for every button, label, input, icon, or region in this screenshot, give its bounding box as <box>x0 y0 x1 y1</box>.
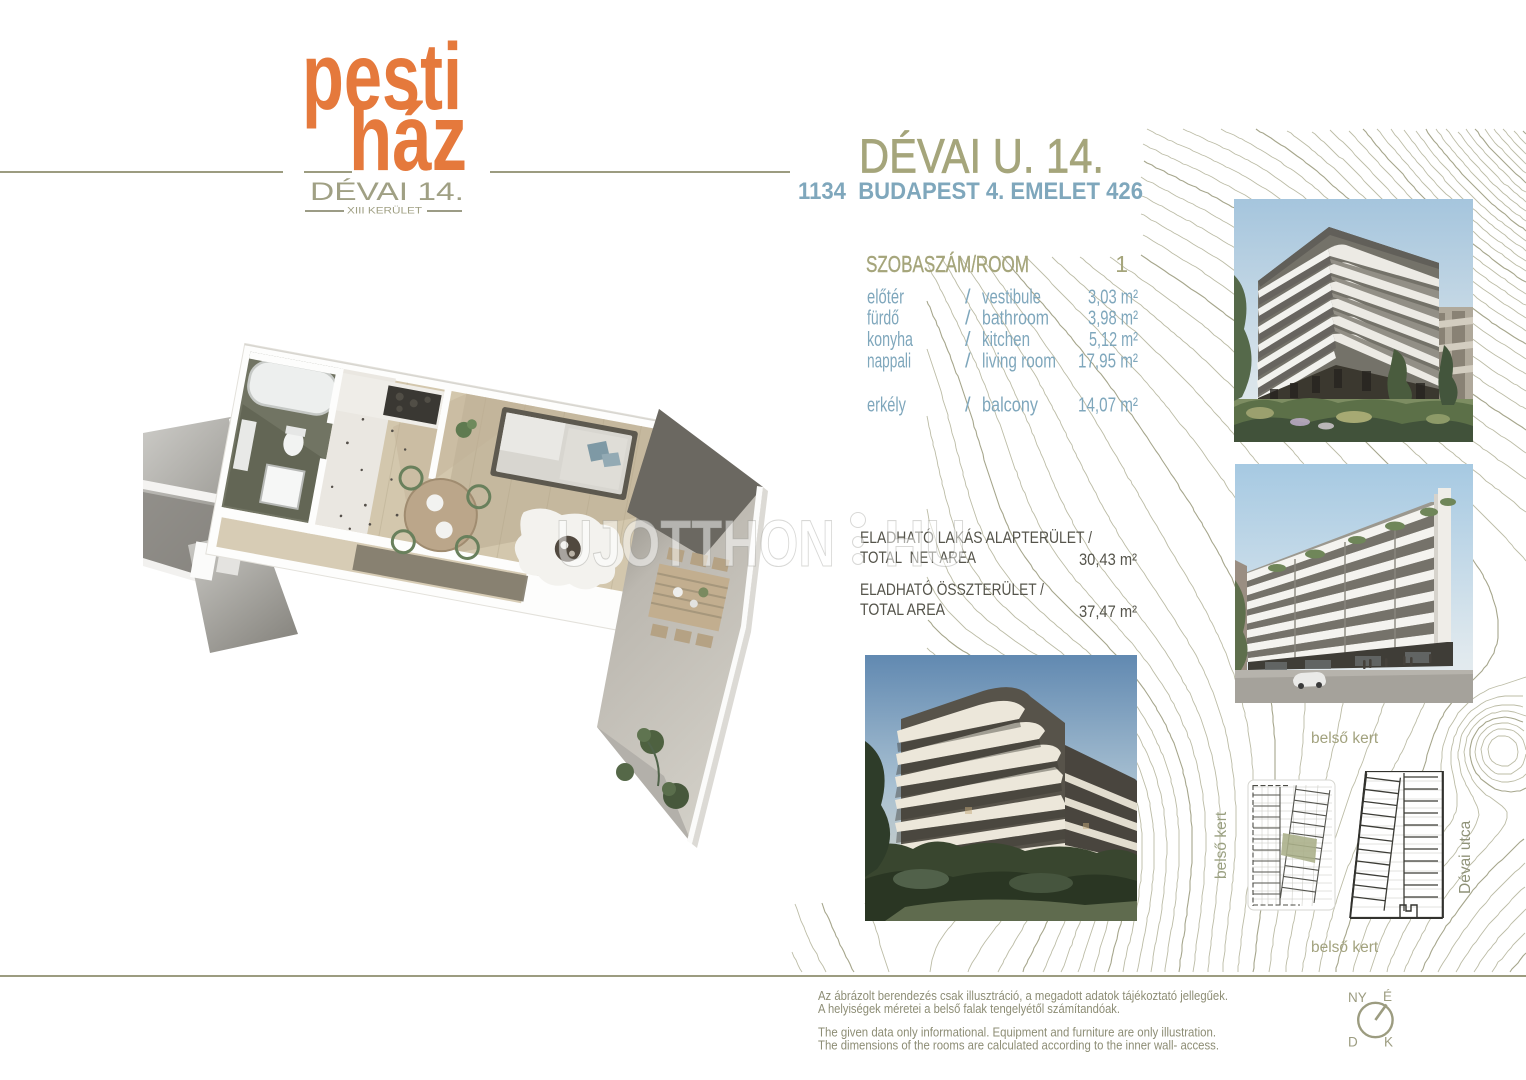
svg-text:É: É <box>1383 989 1392 1004</box>
svg-text:/: / <box>965 308 971 330</box>
svg-text:kitchen: kitchen <box>982 329 1030 351</box>
svg-text:living room: living room <box>982 351 1056 373</box>
svg-text:/: / <box>965 287 971 309</box>
svg-text:bathroom: bathroom <box>982 308 1049 330</box>
svg-text:NY: NY <box>1348 990 1367 1005</box>
svg-text:belső kert: belső kert <box>1311 730 1379 747</box>
svg-text:The dimensions of the rooms ar: The dimensions of the rooms are calculat… <box>818 1038 1219 1053</box>
svg-text:30,43 m²: 30,43 m² <box>1079 550 1137 569</box>
svg-text:HU: HU <box>884 506 966 580</box>
svg-text:1: 1 <box>1115 251 1128 277</box>
svg-text:fürdő: fürdő <box>867 308 899 330</box>
svg-text:5,12 m²: 5,12 m² <box>1089 329 1138 351</box>
svg-text:Dévai utca: Dévai utca <box>1457 820 1474 894</box>
svg-text:konyha: konyha <box>867 329 914 351</box>
svg-text:14,07 m²: 14,07 m² <box>1078 395 1138 417</box>
svg-text:TOTAL AREA: TOTAL AREA <box>860 600 946 619</box>
svg-text:nappali: nappali <box>867 351 911 373</box>
svg-text:belső kert: belső kert <box>1213 811 1230 879</box>
svg-text:vestibule: vestibule <box>982 287 1041 309</box>
svg-text:XIII KERÜLET: XIII KERÜLET <box>347 206 422 217</box>
svg-text:ház: ház <box>349 85 467 191</box>
svg-text:/: / <box>965 395 971 417</box>
svg-text:17,95 m²: 17,95 m² <box>1078 351 1138 373</box>
svg-text:belső kert: belső kert <box>1311 939 1379 956</box>
svg-text:1134 BUDAPEST 4. EMELET 426: 1134 BUDAPEST 4. EMELET 426 <box>798 178 1143 205</box>
svg-text:37,47 m²: 37,47 m² <box>1079 602 1137 621</box>
svg-text:/: / <box>965 351 971 373</box>
svg-text:SZOBASZÁM/ROOM: SZOBASZÁM/ROOM <box>866 251 1029 277</box>
svg-text:/: / <box>965 329 971 351</box>
svg-text:előtér: előtér <box>867 287 904 309</box>
svg-text:K: K <box>1384 1035 1393 1050</box>
svg-text:balcony: balcony <box>982 395 1038 417</box>
svg-text:3,98 m²: 3,98 m² <box>1088 308 1138 330</box>
svg-text:erkély: erkély <box>867 395 906 417</box>
svg-text:DÉVAI 14.: DÉVAI 14. <box>310 177 464 206</box>
svg-text:UJOTTHON: UJOTTHON <box>556 506 835 580</box>
svg-text:DÉVAI U. 14.: DÉVAI U. 14. <box>859 131 1104 184</box>
svg-text:D: D <box>1348 1035 1358 1050</box>
svg-text:A helyiségek méretei a belső f: A helyiségek méretei a belső falak tenge… <box>818 1001 1120 1016</box>
svg-text:3,03 m²: 3,03 m² <box>1088 287 1138 309</box>
